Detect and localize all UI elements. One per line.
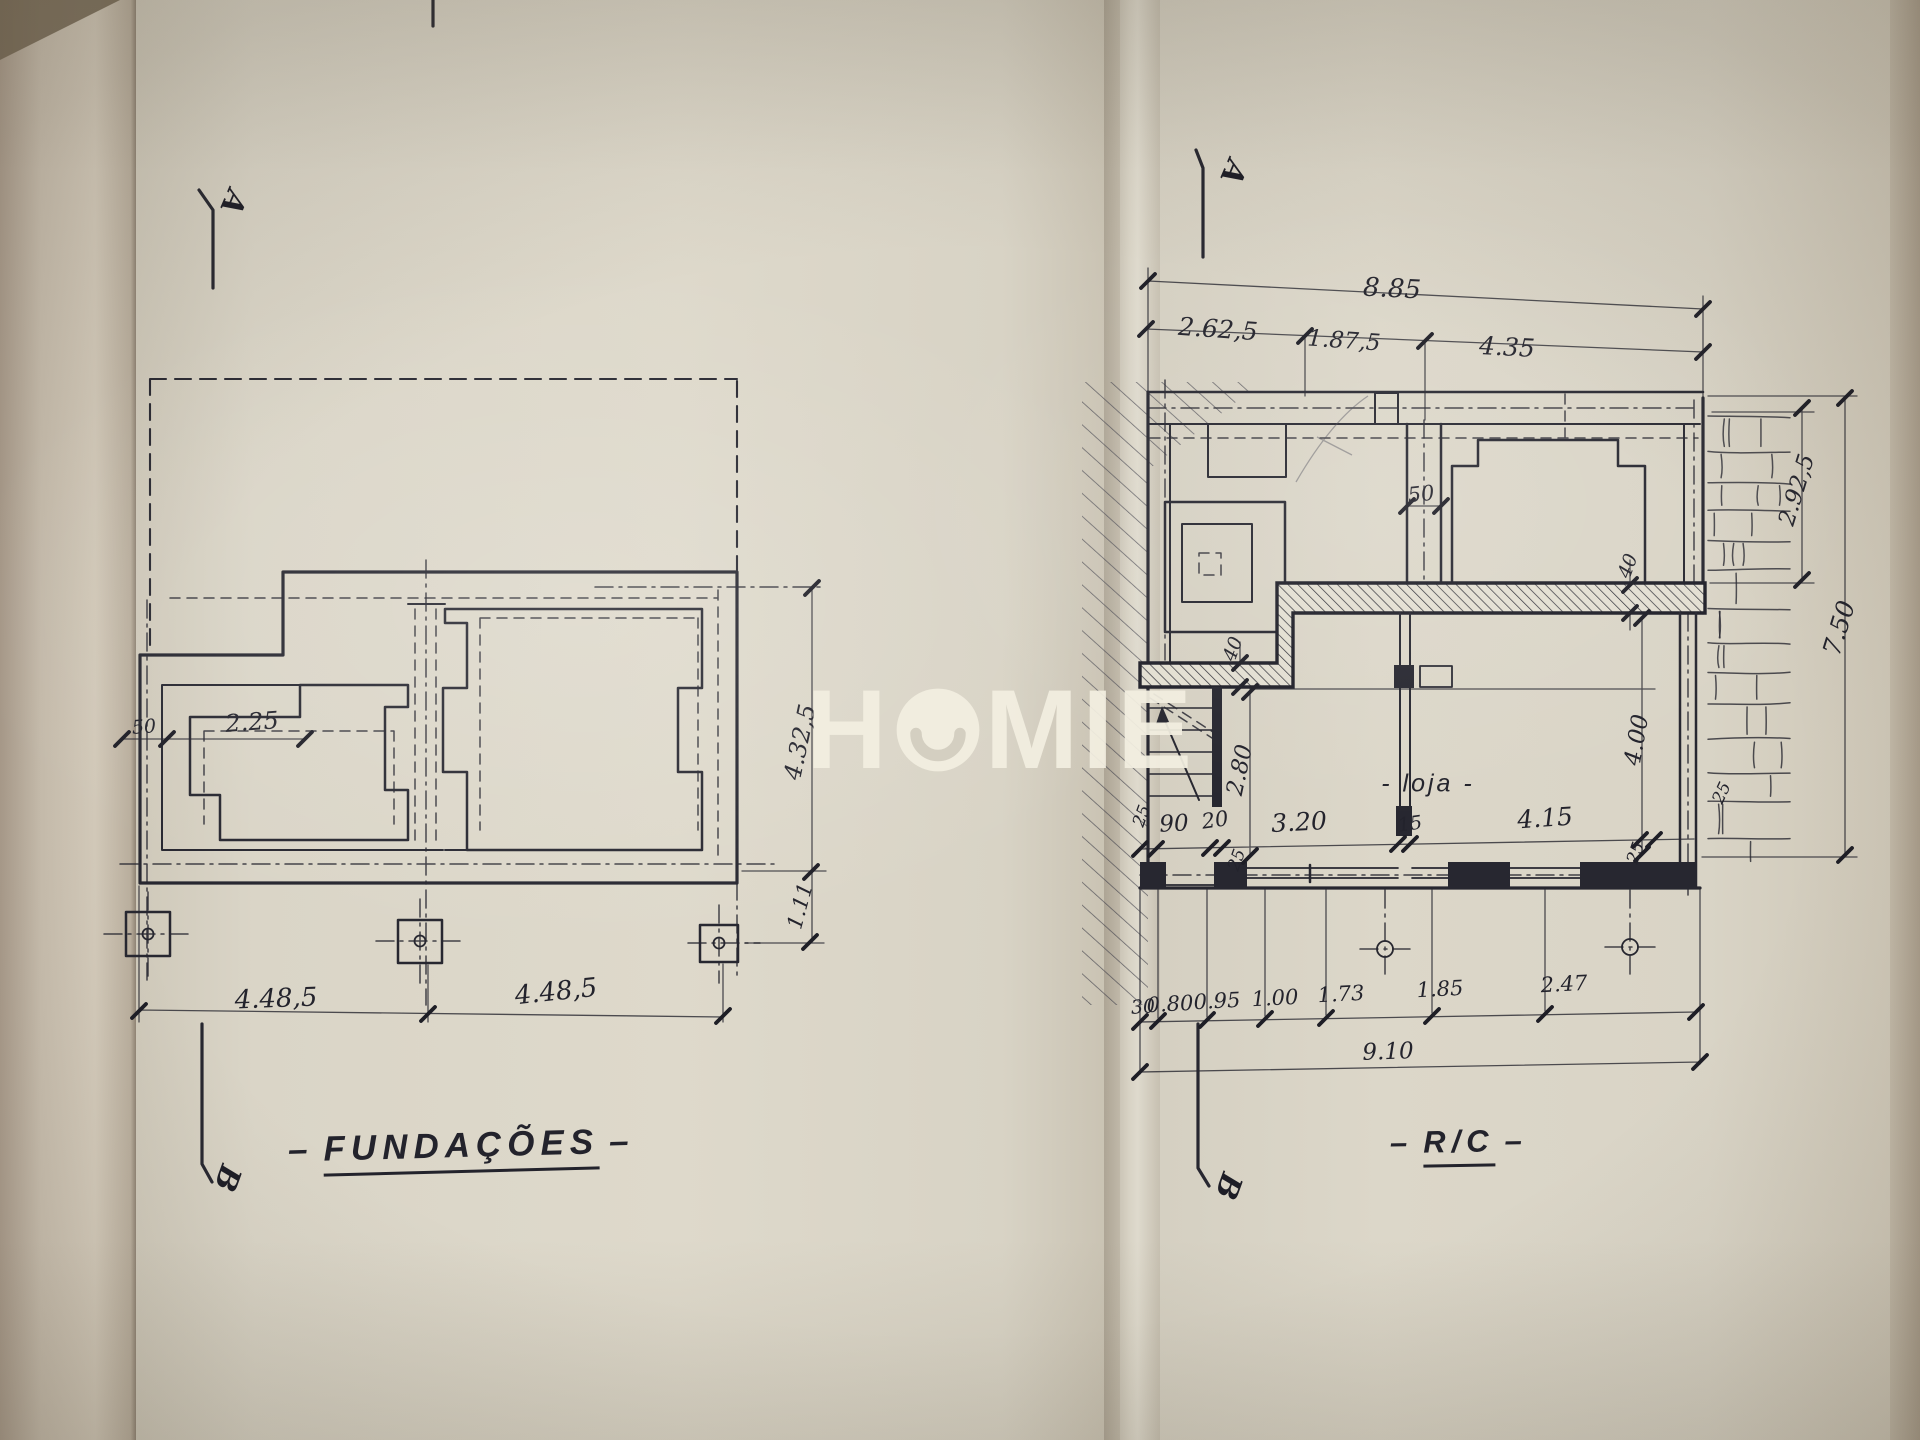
homie-watermark: H MIE <box>806 678 1196 782</box>
watermark-smiley-o-icon <box>894 686 982 774</box>
rc-dim-label: 2.47 <box>1540 971 1588 997</box>
stone-line <box>1708 738 1790 740</box>
title-dash: – <box>1390 1125 1414 1160</box>
foundation-room-left <box>190 685 408 840</box>
stone-line <box>1724 544 1725 566</box>
stone-line <box>1708 643 1790 644</box>
stone-line <box>1781 742 1782 768</box>
rc-dim-label: 1.87,5 <box>1307 325 1382 356</box>
stone-line <box>1757 486 1758 506</box>
upper-right-room <box>1452 440 1645 583</box>
stone-line <box>1743 544 1744 566</box>
foundations-dim-label: 2.25 <box>224 706 279 738</box>
stone-line <box>1708 569 1790 571</box>
watermark-letters-mie: MIE <box>985 678 1196 782</box>
rc-dim-label: 2.62,5 <box>1177 312 1258 346</box>
rc-dim-label: 9.10 <box>1362 1038 1414 1066</box>
foundations-dim-label: 50 <box>131 715 157 739</box>
stone-line <box>1708 672 1790 673</box>
rc-plan <box>1082 150 1857 1186</box>
room-label-loja: - loja - <box>1381 770 1474 799</box>
title-text: FUNDAÇÕES <box>323 1122 600 1176</box>
stone-line <box>1754 742 1755 768</box>
stone-line <box>1708 838 1790 839</box>
rc-dim-label: 1.85 <box>1416 976 1464 1002</box>
title-dash: – <box>1504 1123 1528 1158</box>
dimension-lines <box>122 588 826 1022</box>
stone-line <box>1708 451 1790 452</box>
foundation-room-right <box>443 609 702 850</box>
stone-line <box>1708 416 1790 418</box>
loja-partition <box>1394 613 1452 836</box>
rc-dim-label: 3.20 <box>1270 806 1327 838</box>
foundations-plan <box>104 190 826 1182</box>
rc-dim-label: 50 <box>1406 481 1435 508</box>
stone-line <box>1733 544 1734 566</box>
foundations-dim-label: 4.48,5 <box>234 983 318 1016</box>
stone-line <box>1729 419 1730 446</box>
stone-line <box>1708 482 1790 484</box>
column-markers <box>1360 890 1655 978</box>
rc-dim-label: 0.95 <box>1193 988 1241 1014</box>
stone-line <box>1708 703 1790 705</box>
photographed-blueprint-sheet: 502.254.32,51.114.48,54.48,58.852.62,51.… <box>0 0 1920 1440</box>
stone-line <box>1716 676 1717 700</box>
rc-dim-label: 0.80 <box>1146 991 1194 1017</box>
oven-structure <box>1165 502 1285 632</box>
construction-lines <box>1296 396 1368 482</box>
new-hatched-wall <box>1140 583 1705 687</box>
rc-dim-label: 1.73 <box>1317 981 1365 1007</box>
section-line-b <box>202 1024 212 1182</box>
stone-line <box>1723 419 1724 446</box>
rc-dim-label: 20 <box>1200 806 1230 833</box>
upper-left-feature <box>1208 424 1286 477</box>
stone-line <box>1708 541 1790 542</box>
title-dash: – <box>288 1130 314 1170</box>
title-text: R/C <box>1423 1123 1495 1167</box>
rc-dim-label: 90 <box>1159 810 1190 837</box>
rc-dim-label: 8.85 <box>1362 273 1421 306</box>
rc-dim-label: 1.00 <box>1251 985 1299 1011</box>
stone-line <box>1708 609 1790 610</box>
stone-line <box>1718 646 1719 668</box>
section-line-b <box>1198 1024 1209 1186</box>
footings <box>104 892 760 983</box>
title-dash: – <box>609 1121 635 1161</box>
rc-dim-label: 4.15 <box>1516 802 1574 835</box>
section-line-a <box>1196 150 1203 257</box>
stone-line <box>1721 454 1722 477</box>
rc-dim-label: 15 <box>1396 811 1423 836</box>
section-line-a <box>199 190 213 288</box>
rc-title: –R/C– <box>1380 1123 1538 1162</box>
foundations-title: –FUNDAÇÕES– <box>278 1121 646 1171</box>
stone-line <box>1708 773 1790 774</box>
watermark-letter-h: H <box>806 678 891 782</box>
rc-dim-label: 4.35 <box>1478 331 1535 363</box>
stone-line <box>1719 804 1720 833</box>
stone-line <box>1772 454 1773 477</box>
